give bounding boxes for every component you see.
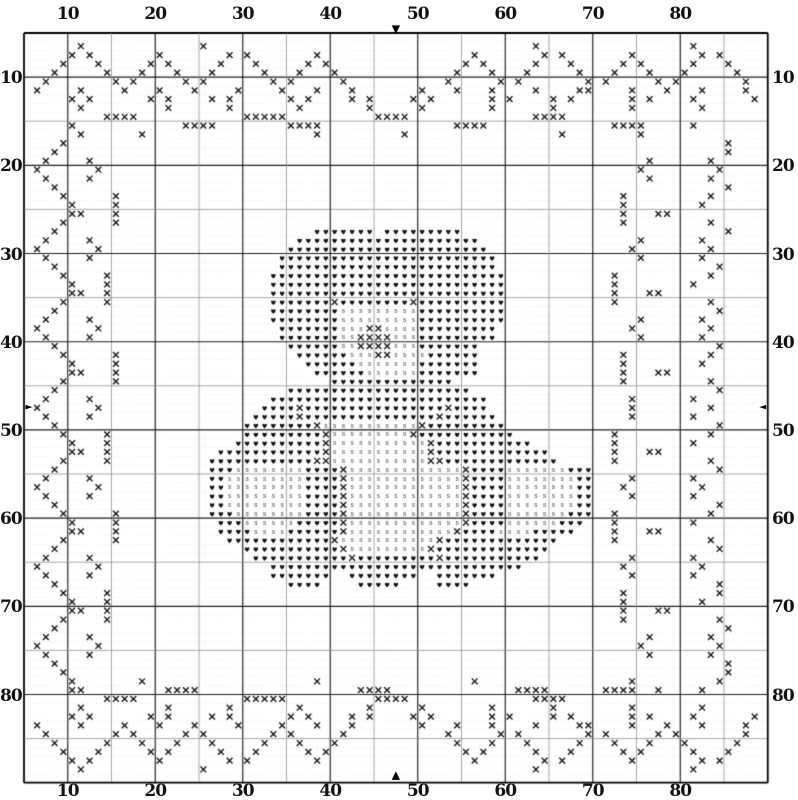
axis-label-top-10: 10 [57, 4, 79, 24]
axis-label-top-70: 70 [582, 4, 604, 24]
axis-label-right-60: 60 [772, 509, 796, 529]
axis-label-left-70: 70 [0, 597, 21, 617]
axis-label-left-20: 20 [0, 156, 21, 176]
axis-label-top-50: 50 [407, 4, 429, 24]
axis-label-left-60: 60 [0, 509, 21, 529]
cross-stitch-pattern-chart: 1020304050607080102030405060708010203040… [0, 0, 798, 800]
axis-label-top-30: 30 [232, 4, 254, 24]
axis-label-top-20: 20 [144, 4, 166, 24]
axis-label-left-30: 30 [0, 245, 21, 265]
axis-label-bottom-10: 10 [57, 781, 79, 800]
axis-label-right-40: 40 [772, 333, 796, 353]
axis-label-bottom-40: 40 [319, 781, 341, 800]
axis-label-left-50: 50 [0, 421, 21, 441]
axis-label-bottom-70: 70 [582, 781, 604, 800]
pattern-grid-canvas [0, 0, 798, 800]
center-marker-top-icon: ▼ [392, 24, 400, 35]
axis-label-left-40: 40 [0, 333, 21, 353]
axis-label-right-10: 10 [772, 68, 796, 88]
axis-label-right-70: 70 [772, 597, 796, 617]
center-marker-left-icon: ► [26, 403, 33, 412]
axis-label-left-80: 80 [0, 686, 21, 706]
axis-label-left-10: 10 [0, 68, 21, 88]
axis-label-right-20: 20 [772, 156, 796, 176]
center-marker-bottom-icon: ▲ [392, 769, 400, 780]
axis-label-bottom-60: 60 [494, 781, 516, 800]
axis-label-top-60: 60 [494, 4, 516, 24]
axis-label-right-30: 30 [772, 245, 796, 265]
axis-label-top-80: 80 [669, 4, 691, 24]
axis-label-bottom-50: 50 [407, 781, 429, 800]
axis-label-right-50: 50 [772, 421, 796, 441]
axis-label-bottom-30: 30 [232, 781, 254, 800]
axis-label-top-40: 40 [319, 4, 341, 24]
axis-label-bottom-20: 20 [144, 781, 166, 800]
axis-label-bottom-80: 80 [669, 781, 691, 800]
axis-label-right-80: 80 [772, 686, 796, 706]
center-marker-right-icon: ◄ [759, 403, 766, 412]
